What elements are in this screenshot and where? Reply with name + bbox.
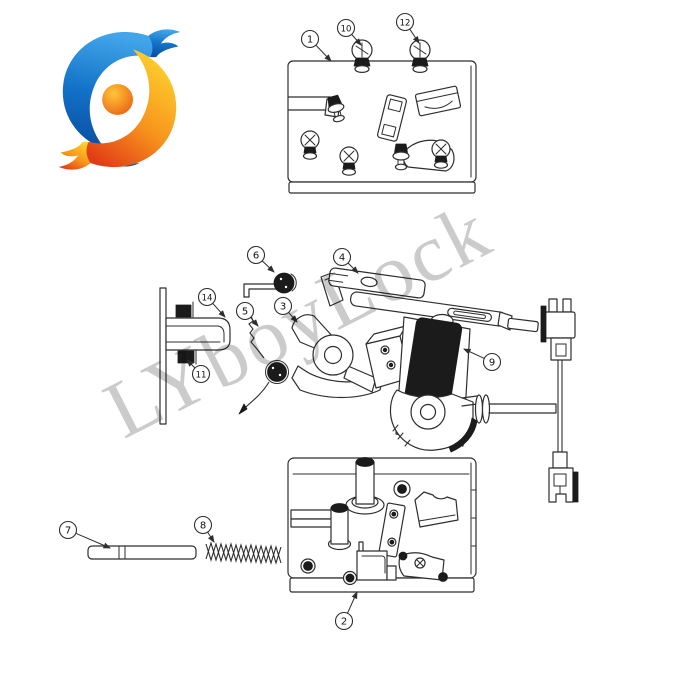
callout-3: 3 bbox=[275, 298, 298, 323]
pin-rod-drawing bbox=[88, 546, 196, 559]
callout-12: 12 bbox=[397, 14, 420, 44]
svg-text:4: 4 bbox=[339, 252, 345, 263]
callout-1: 1 bbox=[302, 31, 332, 62]
strike-bracket-drawing bbox=[160, 288, 230, 424]
shaft-drawing bbox=[462, 395, 556, 423]
spring-wire-drawing bbox=[239, 316, 289, 414]
callout-11: 11 bbox=[187, 360, 210, 383]
upper-cover-drawing bbox=[288, 40, 476, 193]
svg-text:9: 9 bbox=[489, 357, 495, 368]
svg-text:6: 6 bbox=[253, 250, 259, 261]
callout-2: 2 bbox=[336, 592, 358, 630]
lower-case-drawing bbox=[288, 458, 476, 593]
callout-6: 6 bbox=[248, 247, 275, 273]
svg-text:10: 10 bbox=[341, 24, 352, 34]
wiring-drawing bbox=[541, 299, 578, 502]
motor-drawing bbox=[390, 315, 477, 453]
callout-14: 14 bbox=[199, 289, 226, 318]
svg-text:1: 1 bbox=[307, 34, 313, 45]
callout-10: 10 bbox=[338, 20, 362, 46]
svg-text:14: 14 bbox=[202, 293, 213, 303]
logo-center-ball bbox=[102, 84, 133, 115]
svg-text:8: 8 bbox=[200, 520, 206, 531]
callout-8: 8 bbox=[195, 517, 215, 543]
brand-logo bbox=[52, 22, 187, 177]
callout-9: 9 bbox=[464, 349, 501, 371]
callout-5: 5 bbox=[237, 303, 259, 327]
svg-text:7: 7 bbox=[65, 525, 71, 536]
svg-text:11: 11 bbox=[196, 370, 207, 380]
product-diagram-page: 11012141165349782 LYboyLock bbox=[0, 0, 680, 680]
svg-text:5: 5 bbox=[242, 306, 248, 317]
svg-text:3: 3 bbox=[280, 301, 286, 312]
cam-lever-drawing bbox=[292, 315, 416, 398]
callout-7: 7 bbox=[60, 522, 111, 549]
lock-pin-drawing bbox=[244, 273, 296, 297]
svg-text:12: 12 bbox=[400, 18, 411, 28]
svg-text:2: 2 bbox=[341, 616, 347, 627]
coil-spring-drawing bbox=[206, 543, 281, 563]
